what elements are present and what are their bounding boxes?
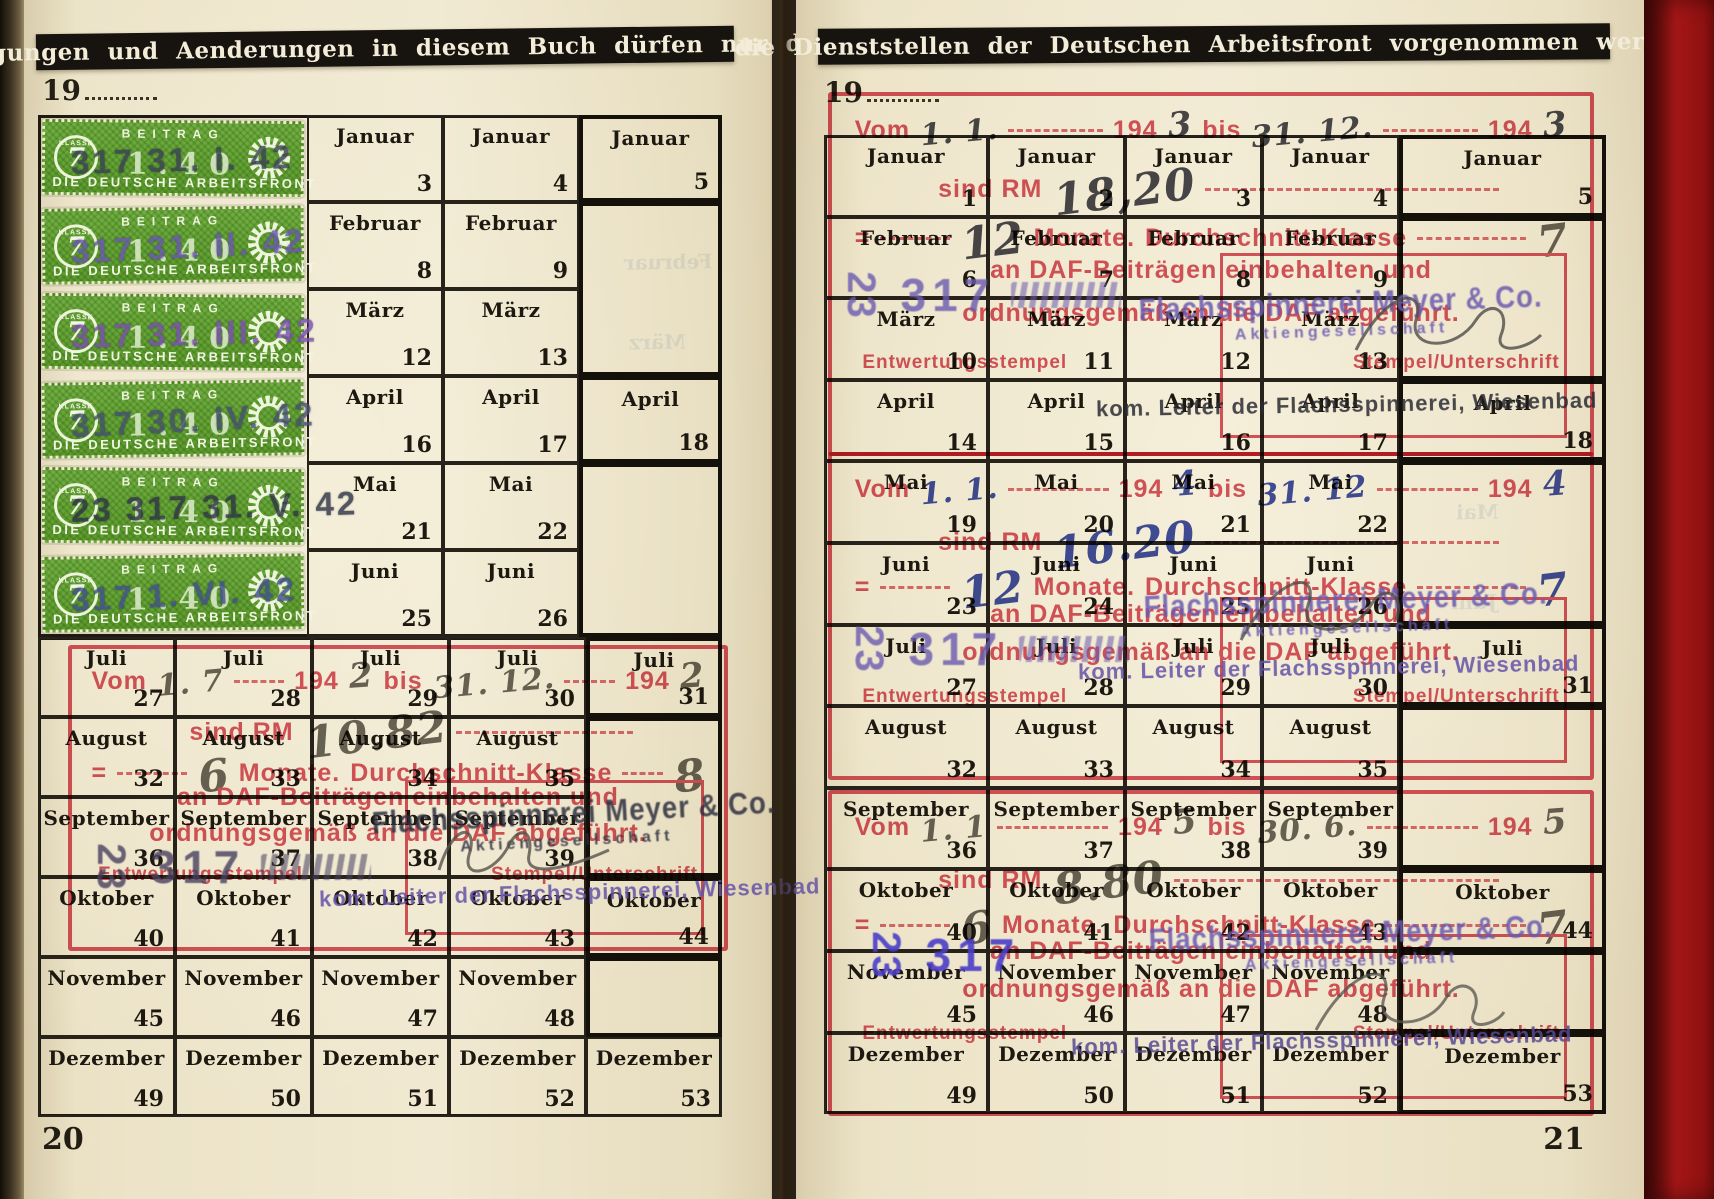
banner-left: Eintragungen und Aenderungen in diesem B…	[36, 26, 734, 71]
office-number: 23	[846, 625, 891, 674]
banner-right: die Dienststellen der Deutschen Arbeitsf…	[818, 23, 1610, 65]
week-number: 22	[537, 519, 568, 545]
dotted-rule	[85, 97, 157, 100]
week-cell: Dezember50	[175, 1037, 312, 1117]
handwritten-from-date: 1. 1.	[919, 470, 1000, 512]
equals-label: =	[855, 224, 871, 253]
dotted-rule	[997, 826, 1108, 829]
vom-label: Vom	[855, 475, 910, 504]
entwertungsstempel-label: Entwertungsstempel	[862, 352, 1067, 374]
week-number: 21	[401, 519, 432, 545]
dotted-rule	[1174, 879, 1500, 882]
week-cell: Februar9	[443, 202, 579, 289]
dotted-rule	[880, 924, 950, 927]
week-number: 13	[537, 345, 568, 371]
book-gutter-shadow	[770, 0, 796, 1199]
dues-stamp: BEITRAGKLASSE71.40DIE DEUTSCHE ARBEITSFR…	[42, 293, 305, 371]
dues-stamp: BEITRAGKLASSE71.40DIE DEUTSCHE ARBEITSFR…	[41, 553, 304, 633]
dotted-rule	[1377, 488, 1477, 491]
week-number: 25	[401, 606, 432, 632]
cancellation-number-stamp: 23 317	[861, 928, 1020, 982]
week-cell: März13	[443, 289, 579, 376]
dotted-rule	[1205, 188, 1499, 191]
week-number: 17	[537, 432, 568, 458]
week-number: 51	[407, 1086, 438, 1112]
dues-stamp: BEITRAGKLASSE71.40DIE DEUTSCHE ARBEITSFR…	[41, 205, 304, 285]
vom-label: Vom	[855, 116, 910, 145]
week-number: 45	[133, 1006, 164, 1032]
month-label: November	[451, 966, 584, 990]
week-cell: Dezember51	[312, 1037, 449, 1117]
week-number: 8	[417, 258, 432, 284]
period-line: Vom 1. 1 1945 bis 30. 6. 1945	[855, 804, 1568, 844]
months-class-line: = 12 Monate. Durchschnitt-Klasse 7	[855, 206, 1568, 257]
dues-stamp: BEITRAGKLASSE71.40DIE DEUTSCHE ARBEITSFR…	[42, 119, 305, 197]
week-number: 50	[270, 1086, 301, 1112]
week-number: 5	[694, 169, 709, 195]
dues-stamp: BEITRAGKLASSE71.40DIE DEUTSCHE ARBEITSFR…	[42, 467, 305, 545]
week-number: 9	[553, 258, 568, 284]
week-number: 46	[270, 1006, 301, 1032]
handwritten-year: 2	[347, 655, 374, 697]
dotted-rule	[880, 237, 950, 240]
week-cell: April18	[579, 376, 722, 463]
handwritten-to-date: 30. 6.	[1256, 807, 1359, 851]
handwritten-from-date: 1. 7	[156, 663, 225, 704]
handwritten-year: 4	[1541, 463, 1568, 505]
month-label: Juni	[445, 559, 577, 583]
week-cell: November46	[175, 957, 312, 1037]
dues-stamp: BEITRAGKLASSE71.40DIE DEUTSCHE ARBEITSFR…	[41, 379, 304, 459]
week-cell: November45	[38, 957, 175, 1037]
bis-label: bis	[384, 667, 423, 696]
year-label: 194	[1119, 475, 1164, 504]
month-label: März	[445, 298, 577, 322]
week-number: 49	[133, 1086, 164, 1112]
year-label: 194	[294, 667, 339, 696]
week-number: 18	[678, 430, 709, 456]
dotted-rule	[1417, 237, 1525, 240]
vom-label: Vom	[855, 813, 910, 842]
office-number: 317	[909, 622, 1004, 676]
year-label: 194	[1488, 475, 1533, 504]
book-spine-edge	[0, 0, 24, 1199]
amount-line: sind RM 16.20	[938, 510, 1499, 561]
dotted-rule	[880, 586, 950, 589]
week-cell: Dezember52	[449, 1037, 586, 1117]
office-number: 23	[88, 843, 133, 892]
month-label: Dezember	[177, 1046, 310, 1070]
office-number: 317	[926, 928, 1021, 982]
year-prefix-text: 19	[42, 74, 81, 107]
month-label: Januar	[583, 126, 718, 150]
year-label: 194	[1113, 116, 1158, 145]
month-label: November	[314, 966, 447, 990]
week-number: 26	[537, 606, 568, 632]
ghost-offset-text: Februar	[624, 249, 713, 275]
week-number: 53	[680, 1086, 711, 1112]
year-label: 194	[625, 667, 670, 696]
month-label: Januar	[445, 124, 577, 148]
month-label: Februar	[445, 211, 577, 235]
page-right: die Dienststellen der Deutschen Arbeitsf…	[796, 0, 1645, 1199]
stamp-smear	[1011, 282, 1121, 308]
year-label: 194	[1488, 116, 1533, 145]
dotted-rule	[234, 680, 285, 683]
month-label: Dezember	[451, 1046, 584, 1070]
month-label: April	[445, 385, 577, 409]
month-label: November	[40, 966, 173, 990]
month-label: Dezember	[40, 1046, 173, 1070]
banner-right-text: die Dienststellen der Deutschen Arbeitsf…	[735, 27, 1694, 61]
dotted-rule	[117, 772, 187, 775]
amount-line: sind RM 18,20	[938, 157, 1499, 208]
monate-label: Monate.	[1034, 573, 1135, 602]
klasse-label: Durchschnitt-Klasse	[1145, 224, 1407, 253]
month-label: Mai	[445, 472, 577, 496]
handwritten-from-date: 1. 1.	[919, 111, 1000, 153]
week-cell: Januar4	[443, 115, 579, 202]
month-label: November	[177, 966, 310, 990]
handwritten-year: 5	[1541, 801, 1568, 843]
handwritten-year: 4	[1172, 463, 1199, 505]
dotted-rule	[1205, 541, 1499, 544]
office-number: 317	[901, 268, 996, 322]
week-number: 48	[544, 1006, 575, 1032]
office-number: 23	[838, 271, 883, 320]
entwertungsstempel-label: Entwertungsstempel	[862, 1023, 1067, 1045]
office-number: 317	[151, 840, 246, 894]
week-cell: Dezember53	[586, 1037, 722, 1117]
month-label: Dezember	[314, 1046, 447, 1070]
dotted-rule	[622, 772, 662, 775]
period-line: Vom 1. 1. 1943 bis 31. 12. 1943	[855, 107, 1568, 147]
sind-rm-label: sind RM	[938, 866, 1042, 895]
ghost-offset-text: März	[629, 330, 686, 355]
handwritten-from-date: 1. 1	[919, 809, 988, 850]
week-cell: April17	[443, 376, 579, 463]
empty-bold-box	[586, 957, 722, 1037]
week-number: 52	[544, 1086, 575, 1112]
handwritten-year: 5	[1171, 801, 1198, 843]
dotted-rule	[1008, 488, 1108, 491]
week-number: 3	[417, 171, 432, 197]
week-cell: Dezember49	[38, 1037, 175, 1117]
sind-rm-label: sind RM	[938, 528, 1042, 557]
stamp-smear	[261, 854, 371, 880]
handwritten-year: 3	[1541, 104, 1568, 146]
page-number-left: 20	[42, 1122, 84, 1157]
year-label: 194	[1488, 813, 1533, 842]
week-number: 12	[401, 345, 432, 371]
week-number: 4	[553, 171, 568, 197]
dotted-rule	[456, 731, 632, 734]
period-line: Vom 1. 7 1942 bis 31. 12. 1942	[92, 658, 705, 698]
bis-label: bis	[1202, 116, 1241, 145]
year-label: 194	[1118, 813, 1163, 842]
dotted-rule	[1367, 826, 1478, 829]
handwritten-year: 2	[678, 655, 705, 697]
signature	[424, 810, 624, 905]
handwritten-to-date: 31. 12.	[1250, 109, 1374, 154]
week-cell: Mai22	[443, 463, 579, 550]
handwritten-to-date: 31. 12	[1256, 469, 1369, 513]
signature	[1296, 950, 1506, 1065]
month-label: April	[583, 387, 718, 411]
handwritten-year: 3	[1166, 104, 1193, 146]
page-number-right: 21	[1543, 1122, 1585, 1157]
year-prefix-left: 19	[42, 74, 157, 107]
monate-label: Monate.	[1034, 224, 1135, 253]
signature	[1216, 560, 1436, 675]
empty-bold-box	[579, 463, 722, 637]
week-cell: November47	[312, 957, 449, 1037]
week-cell: Januar5	[579, 115, 722, 202]
office-number: 23	[863, 931, 908, 980]
bis-label: bis	[1208, 475, 1247, 504]
bis-label: bis	[1207, 813, 1246, 842]
dotted-rule	[564, 680, 615, 683]
period-line: Vom 1. 1. 1944 bis 31. 12 1944	[855, 466, 1568, 506]
vom-label: Vom	[92, 667, 147, 696]
dotted-rule	[1008, 129, 1103, 132]
month-label: Dezember	[588, 1046, 720, 1070]
page-left: Eintragungen und Aenderungen in diesem B…	[24, 0, 772, 1199]
week-number: 16	[401, 432, 432, 458]
entwertungsstempel-label: Entwertungsstempel	[862, 686, 1067, 708]
sind-rm-label: sind RM	[938, 175, 1042, 204]
cancellation-number-stamp: 23 317	[836, 268, 1121, 322]
week-cell: Juni26	[443, 550, 579, 637]
week-number: 47	[407, 1006, 438, 1032]
amount-line: sind RM 8.80	[938, 848, 1499, 899]
signature	[1336, 280, 1546, 385]
dotted-rule	[1383, 129, 1478, 132]
week-cell: November48	[449, 957, 586, 1037]
book-cover-right	[1644, 0, 1714, 1199]
equals-label: =	[855, 573, 871, 602]
